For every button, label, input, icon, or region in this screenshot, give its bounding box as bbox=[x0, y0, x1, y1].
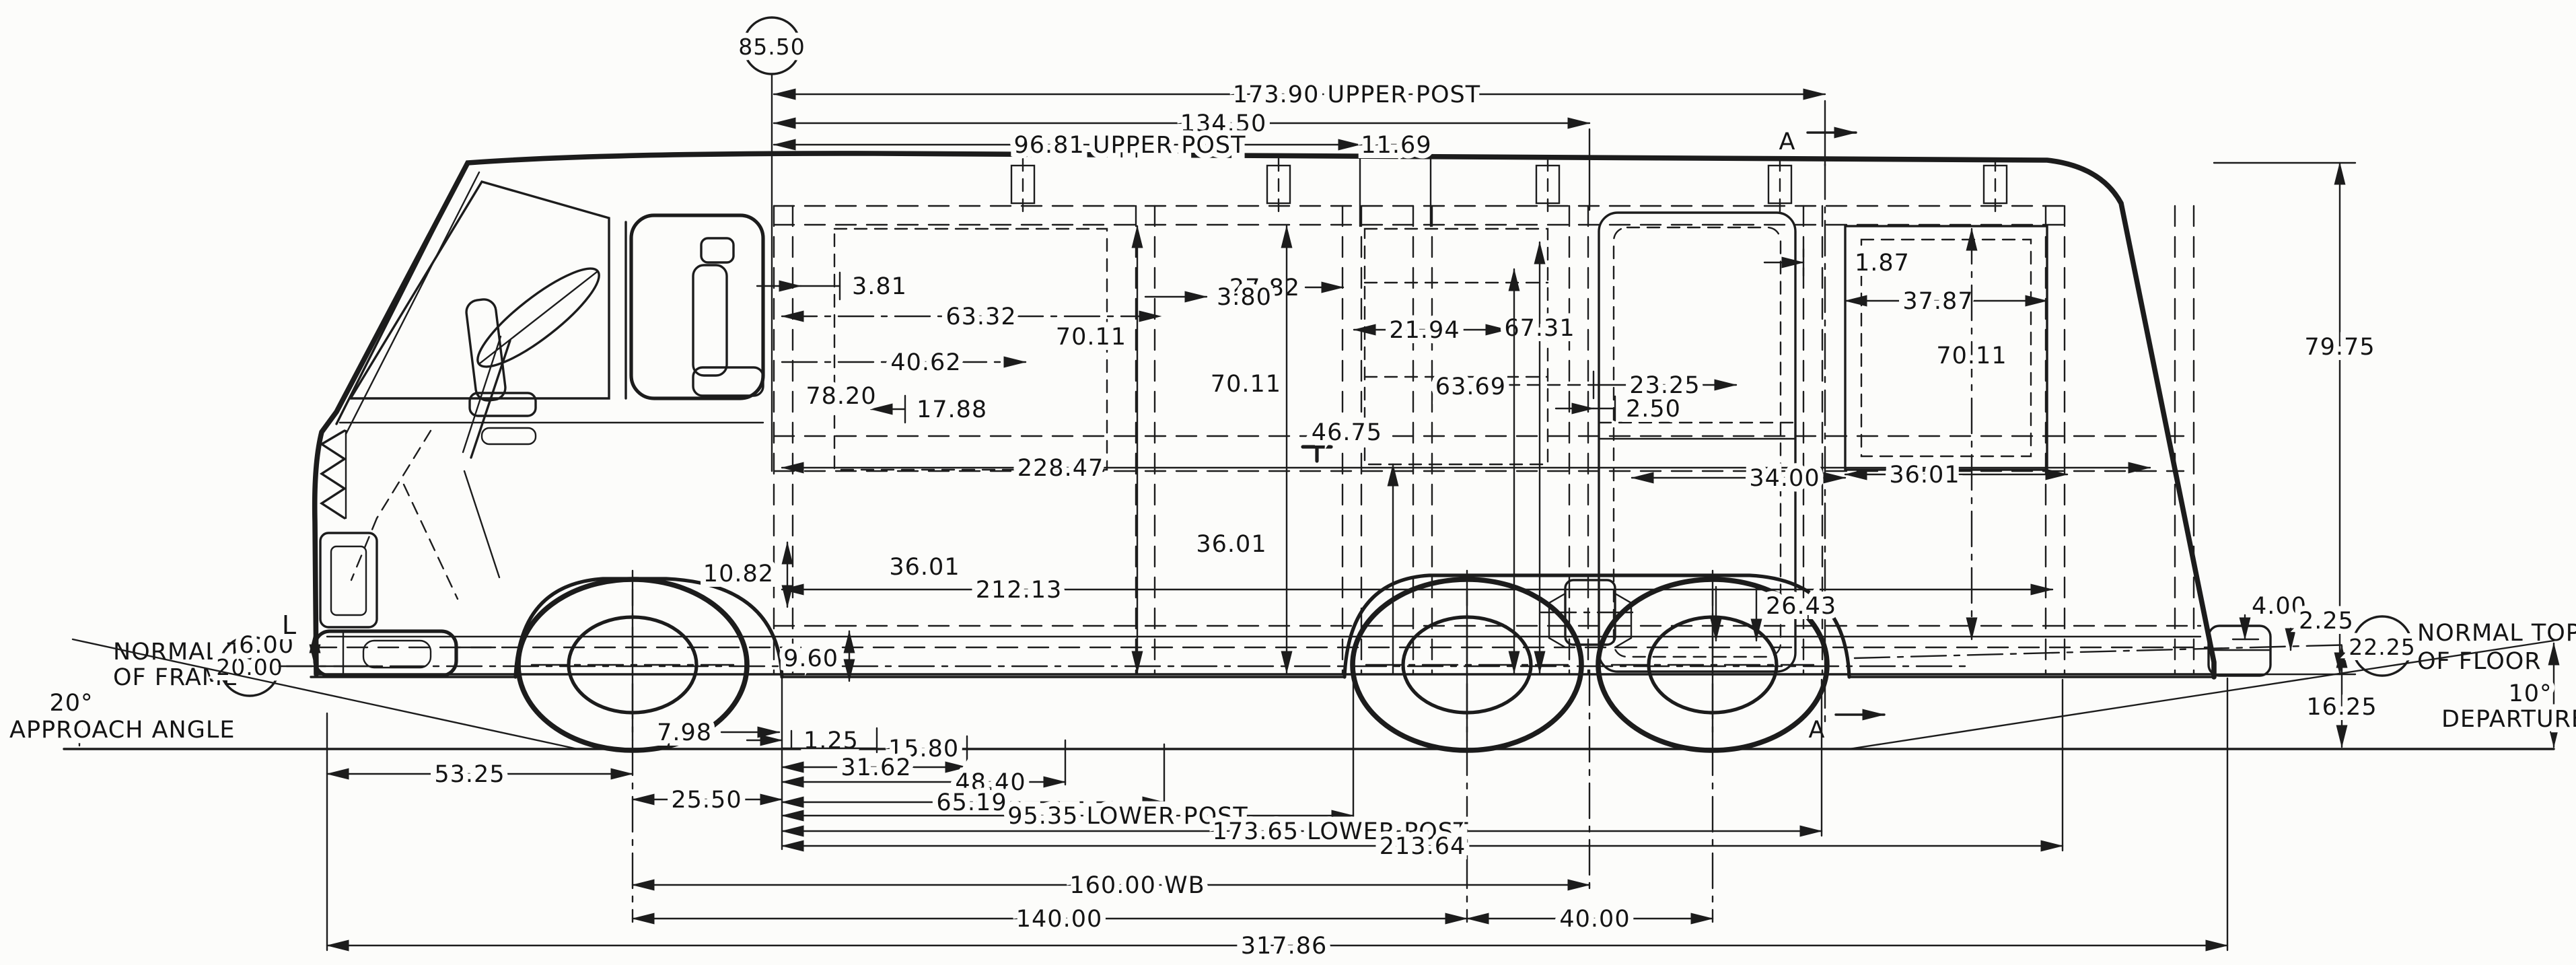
dim-34-00: 34.00 bbox=[1749, 465, 1820, 492]
dim-11-69: 11.69 bbox=[1361, 132, 1431, 159]
dim-63-32: 63.32 bbox=[945, 303, 1016, 330]
dim-70-11-mid: 70.11 bbox=[1211, 371, 1281, 398]
interior-details bbox=[351, 238, 763, 599]
dim-26-43: 26.43 bbox=[1766, 593, 1836, 620]
body-structure-frame bbox=[316, 159, 2214, 674]
dim-floor-height: 22.25 bbox=[2349, 634, 2415, 660]
label-departure-deg: 10° bbox=[2508, 680, 2552, 707]
dim-40-62: 40.62 bbox=[890, 349, 961, 376]
label-approach-angle: APPROACH ANGLE bbox=[9, 717, 235, 744]
dim-37-87: 37.87 bbox=[1902, 288, 1973, 315]
blueprint-canvas: A A 85.50 173.90 UPPER POST 134.50 96.81… bbox=[0, 0, 2576, 965]
dim-upper-post-length: 173.90 UPPER POST bbox=[1233, 81, 1480, 108]
vertical-dimensions: 70.11 70.11 70.11 67.31 63.69 46.75 79.7… bbox=[703, 163, 2377, 747]
ground-line bbox=[64, 666, 2554, 749]
vehicle-body bbox=[311, 153, 2270, 677]
dim-2-25: 2.25 bbox=[2299, 608, 2354, 635]
bottom-dimensions: 7.98 1.25 15.80 31.62 48.40 65.19 53.25 … bbox=[327, 670, 2227, 960]
section-a-bottom-label: A bbox=[1809, 717, 1826, 744]
dim-overall-height: 85.50 bbox=[738, 34, 805, 60]
dim-21-94: 21.94 bbox=[1389, 317, 1460, 344]
dim-overall-length: 317.86 bbox=[1241, 933, 1327, 960]
dim-78-20: 78.20 bbox=[806, 383, 876, 410]
dim-213-64: 213.64 bbox=[1380, 833, 1466, 860]
label-normal-top-floor-1: NORMAL TOP bbox=[2417, 620, 2576, 647]
dim-79-75: 79.75 bbox=[2304, 334, 2375, 361]
front-grille-zigzag bbox=[322, 431, 346, 518]
dim-63-69: 63.69 bbox=[1435, 373, 1506, 400]
side-marker bbox=[482, 428, 536, 444]
passenger-seat bbox=[693, 238, 763, 396]
label-approach-deg: 20° bbox=[49, 690, 93, 717]
blueprint-sheet: A A 85.50 173.90 UPPER POST 134.50 96.81… bbox=[0, 0, 2576, 965]
dim-53-25: 53.25 bbox=[434, 761, 505, 788]
dim-7-98: 7.98 bbox=[657, 719, 712, 746]
wheels bbox=[515, 571, 1849, 922]
front-fender bbox=[515, 579, 782, 677]
dim-wheelbase: 160.00 WB bbox=[1069, 872, 1205, 899]
dim-140-00: 140.00 bbox=[1016, 906, 1102, 933]
steering-wheel bbox=[466, 255, 610, 380]
dim-23-25: 23.25 bbox=[1629, 372, 1700, 399]
dim-3-80: 3.80 bbox=[1217, 284, 1272, 311]
front-bumper bbox=[315, 631, 495, 676]
dim-31-62: 31.62 bbox=[840, 754, 911, 781]
dim-70-11-right: 70.11 bbox=[1936, 343, 2007, 369]
mid-dimensions: 3.81 27.82 3.80 21.94 1.87 37.87 63.32 4… bbox=[757, 249, 2150, 604]
dim-46-75: 46.75 bbox=[1312, 419, 1382, 446]
label-departure: DEPARTURE bbox=[2441, 706, 2576, 733]
dim-17-88: 17.88 bbox=[917, 396, 987, 423]
dim-40-00: 40.00 bbox=[1559, 906, 1630, 933]
dim-25-50: 25.50 bbox=[671, 787, 742, 814]
dim-2-50: 2.50 bbox=[1626, 396, 1681, 423]
dim-1-25: 1.25 bbox=[803, 727, 859, 754]
dim-9-60: 9.60 bbox=[783, 645, 838, 672]
datum-l-mark: L bbox=[282, 610, 297, 640]
dim-228-47: 228.47 bbox=[1017, 455, 1104, 482]
dim-10-82: 10.82 bbox=[703, 561, 774, 587]
dim-65-19: 65.19 bbox=[936, 789, 1007, 816]
dim-36-01-left: 36.01 bbox=[889, 554, 960, 581]
dim-70-11-left: 70.11 bbox=[1056, 324, 1126, 351]
dim-upper-post-front: 96.81 UPPER POST bbox=[1014, 132, 1246, 159]
dim-16-25: 16.25 bbox=[2306, 694, 2377, 721]
left-annotations: NORMAL TOP OF FRAME 20.00 6.00 L 20° APP… bbox=[9, 610, 577, 749]
section-a-top-label: A bbox=[1779, 129, 1796, 155]
rear-bumper bbox=[2209, 626, 2270, 676]
dim-212-13: 212.13 bbox=[976, 577, 1062, 604]
dim-1-87: 1.87 bbox=[1855, 250, 1910, 277]
headlight-bezel bbox=[320, 533, 377, 627]
dim-36-01-right: 36.01 bbox=[1889, 462, 1960, 489]
dim-36-01-mid: 36.01 bbox=[1196, 531, 1266, 558]
dim-3-81: 3.81 bbox=[852, 273, 907, 300]
